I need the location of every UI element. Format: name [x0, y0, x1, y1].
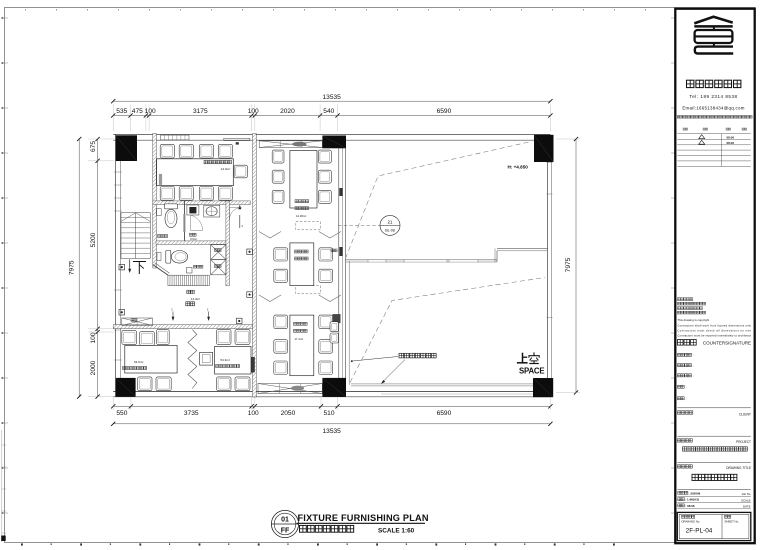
svg-text:100: 100: [248, 410, 259, 417]
svg-text:21: 21: [388, 219, 393, 224]
svg-text:Tel: 189 2314 8538: Tel: 189 2314 8538: [689, 94, 737, 99]
svg-text:Contractors must check all: Contractors must check all dimensions on…: [677, 328, 751, 332]
svg-text:SPACE: SPACE: [519, 366, 544, 375]
svg-text:SCALE: SCALE: [741, 498, 751, 502]
svg-text::: :: [693, 353, 694, 357]
svg-text:475: 475: [132, 108, 143, 115]
svg-text:6590: 6590: [437, 108, 452, 115]
svg-text:Contractors shall work from: Contractors shall work from figured dime…: [677, 323, 751, 327]
svg-text:550: 550: [116, 410, 127, 417]
svg-text:100: 100: [145, 108, 156, 115]
svg-text:510: 510: [323, 410, 334, 417]
svg-text:This drawing is copyright: This drawing is copyright: [677, 318, 709, 322]
svg-text:13535: 13535: [323, 94, 342, 101]
svg-text:3.0m²: 3.0m²: [190, 237, 197, 241]
svg-text:BL-08: BL-08: [385, 229, 395, 233]
svg-text:675: 675: [90, 141, 97, 152]
svg-text:2020: 2020: [280, 108, 295, 115]
svg-text:54.3m²: 54.3m²: [221, 358, 230, 362]
svg-text::: :: [686, 385, 687, 389]
svg-text:6590: 6590: [437, 410, 452, 417]
svg-text:08.06: 08.06: [727, 141, 735, 145]
svg-text:2000: 2000: [90, 360, 97, 375]
svg-text:3735: 3735: [184, 410, 199, 417]
svg-text:Contractors must be reporte: Contractors must be reported immediately…: [677, 333, 751, 337]
svg-text:2: 2: [207, 308, 209, 312]
svg-text:: 1:60(A3): : 1:60(A3): [685, 498, 699, 502]
svg-text:540: 540: [323, 108, 334, 115]
svg-text:H: +4.850: H: +4.850: [508, 165, 529, 170]
svg-text:01: 01: [281, 517, 289, 524]
svg-text:DRAWING TITLE: DRAWING TITLE: [726, 466, 751, 470]
svg-text:17.1m²: 17.1m²: [295, 337, 304, 341]
svg-text:2: 2: [171, 308, 173, 312]
svg-text:14.3m²: 14.3m²: [191, 297, 200, 301]
svg-text:SHEET No.: SHEET No.: [725, 520, 740, 524]
svg-text:CLIENT: CLIENT: [739, 412, 751, 416]
svg-text:PROJECT: PROJECT: [736, 440, 751, 444]
svg-text:08.06: 08.06: [727, 135, 735, 139]
svg-text:54.9m²: 54.9m²: [134, 360, 143, 364]
svg-text:2: 2: [242, 224, 244, 228]
svg-text:7975: 7975: [565, 257, 572, 272]
svg-text:2F-PL-04: 2F-PL-04: [686, 528, 713, 535]
svg-text:: 202006: : 202006: [689, 491, 701, 495]
svg-text:100: 100: [248, 108, 259, 115]
svg-text:3175: 3175: [193, 108, 208, 115]
svg-text:FF: FF: [281, 527, 290, 534]
svg-text:7975: 7975: [69, 260, 76, 275]
svg-text:: 08.06: : 08.06: [685, 504, 695, 508]
svg-text::: :: [693, 364, 694, 368]
svg-text::: :: [693, 374, 694, 378]
svg-text:14.3m²: 14.3m²: [221, 167, 231, 171]
svg-text:14.36m²: 14.36m²: [296, 214, 306, 218]
svg-text:13535: 13535: [323, 428, 342, 435]
svg-text:Job No: Job No: [741, 492, 751, 496]
svg-text:DRAWING No.: DRAWING No.: [682, 520, 701, 524]
svg-text:535: 535: [116, 108, 127, 115]
svg-text:COUNTERSIGNATURE: COUNTERSIGNATURE: [703, 340, 751, 345]
svg-text:2050: 2050: [281, 410, 296, 417]
svg-text:100: 100: [90, 332, 97, 343]
svg-text:5200: 5200: [90, 232, 97, 247]
svg-text:SCALE 1:60: SCALE 1:60: [378, 527, 415, 534]
svg-text:DATE: DATE: [743, 505, 751, 509]
svg-text::: :: [686, 397, 687, 401]
svg-text:FIXTURE FURNISHING PLAN: FIXTURE FURNISHING PLAN: [298, 513, 429, 523]
svg-text:Email:1665138434@qq.com: Email:1665138434@qq.com: [682, 106, 744, 111]
